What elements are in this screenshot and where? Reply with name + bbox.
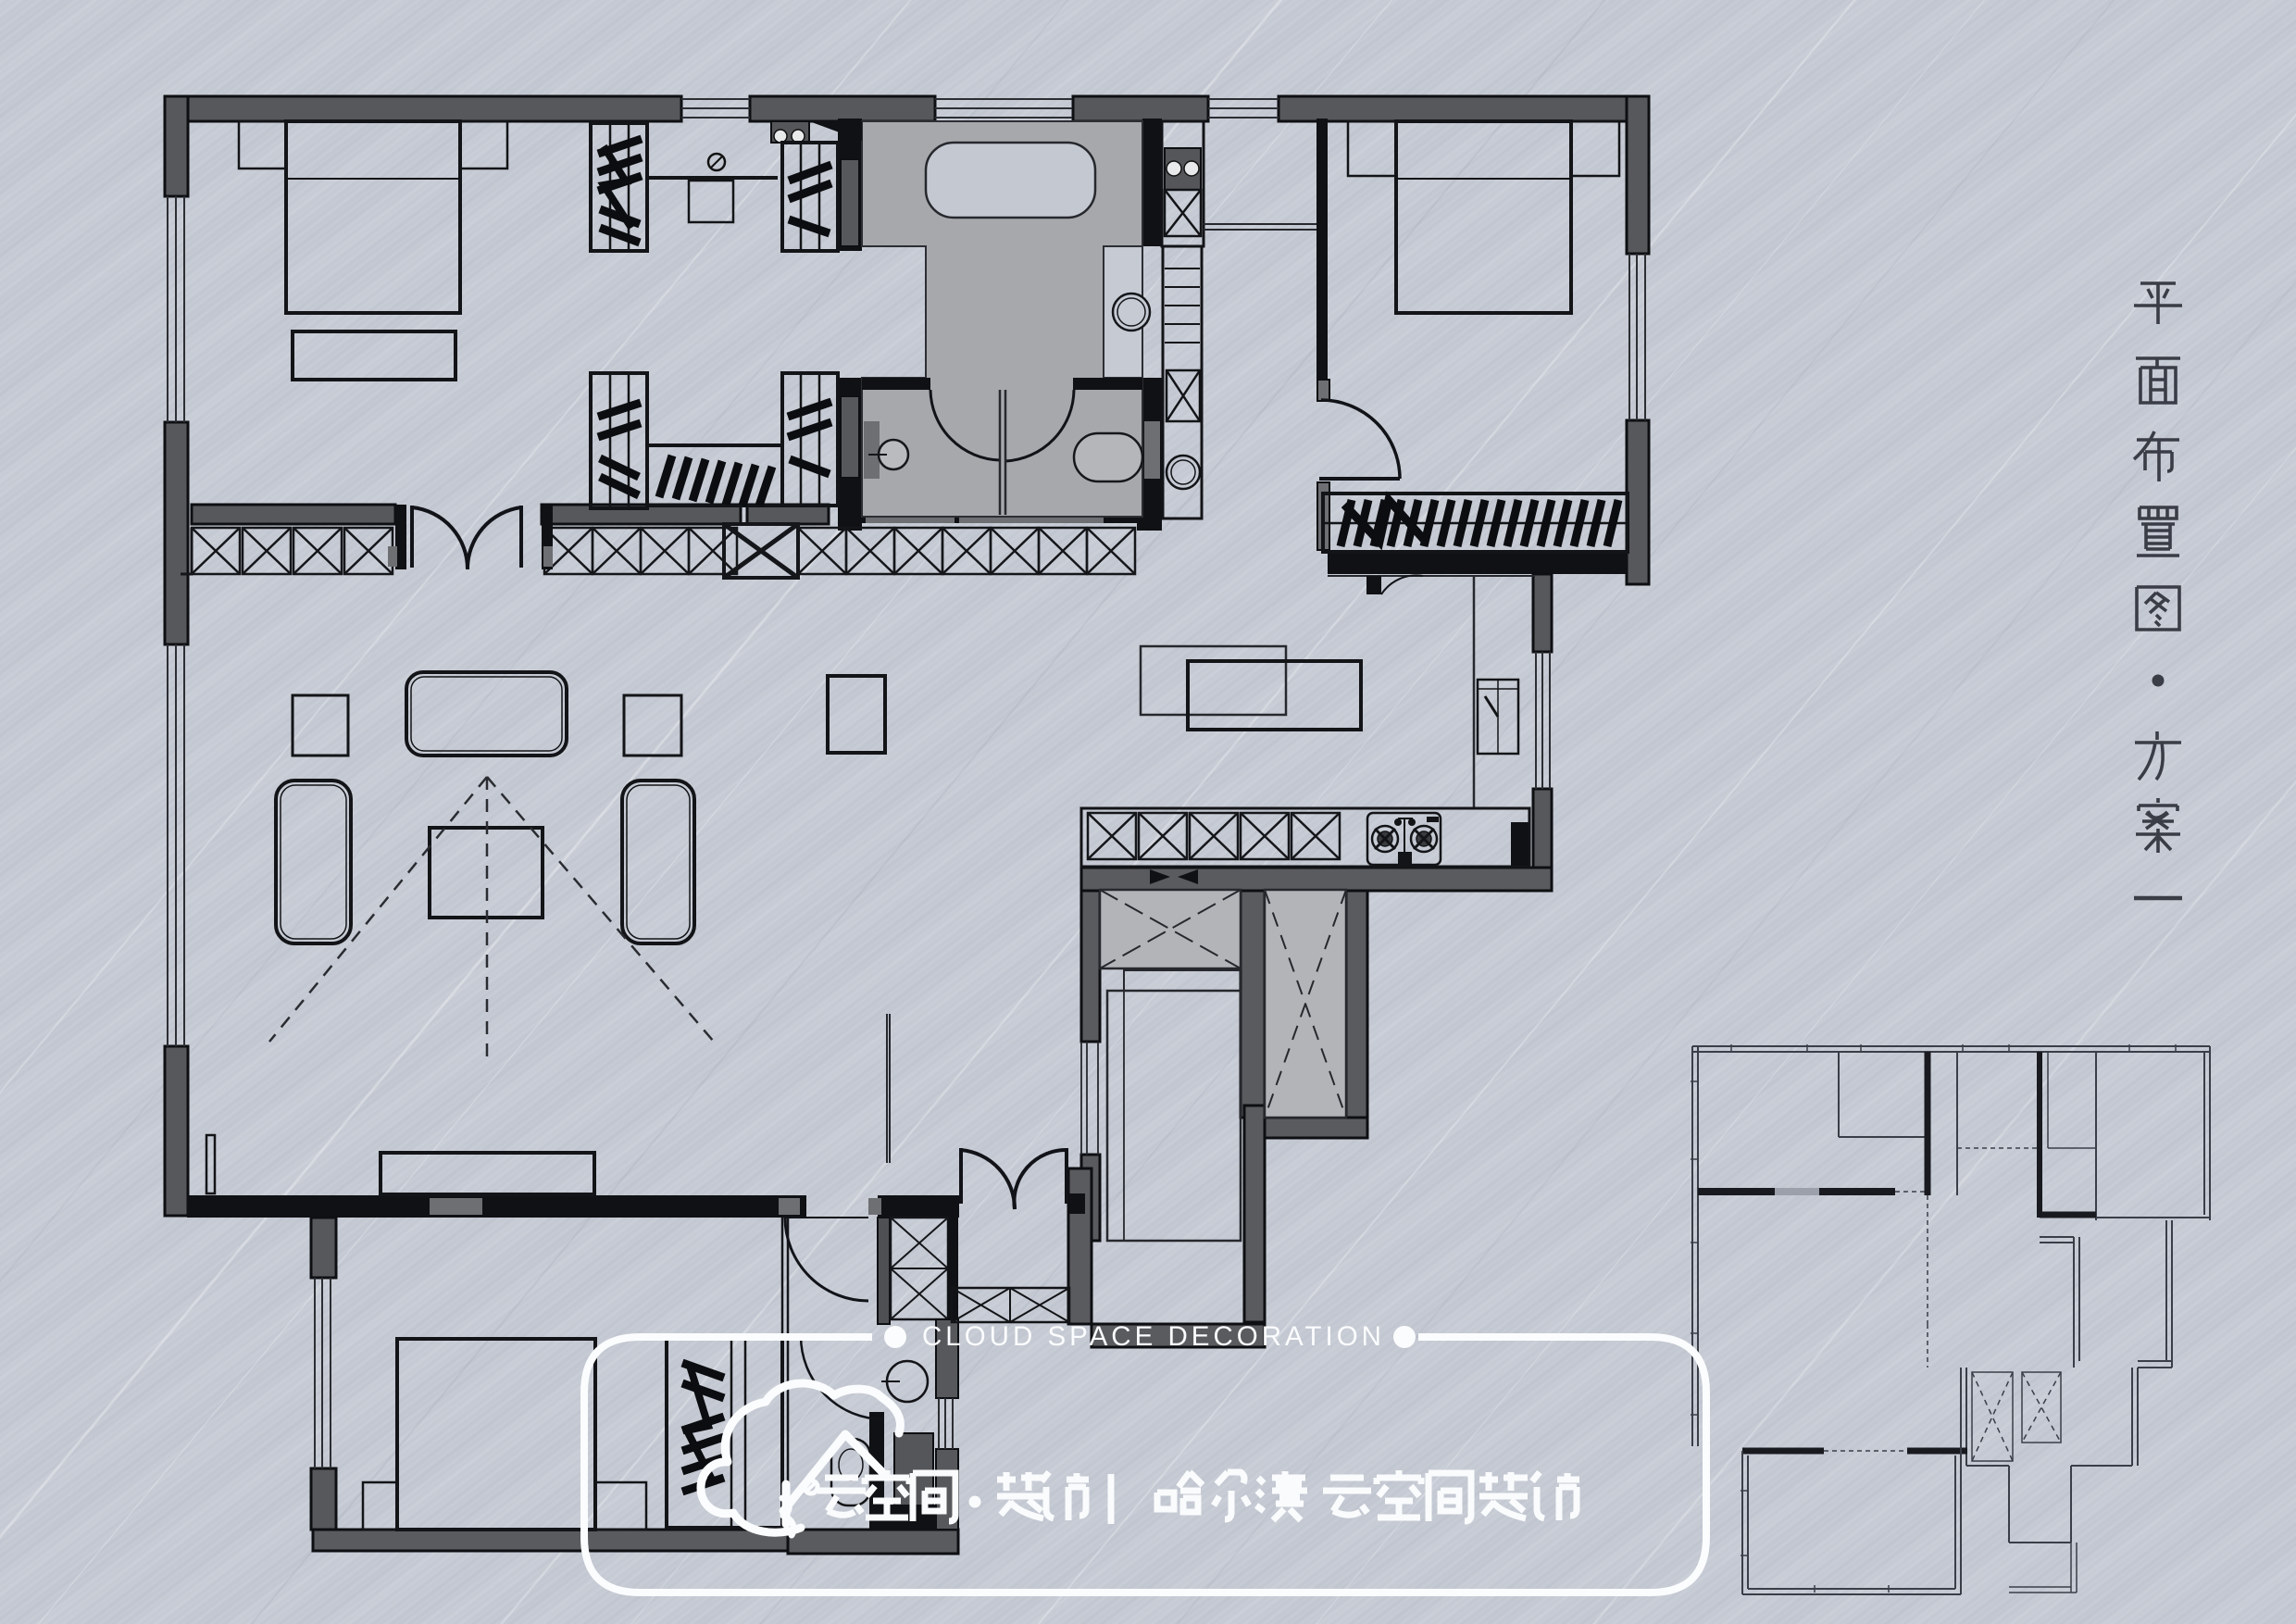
- svg-text:CLOUD SPACE DECORATION: CLOUD SPACE DECORATION: [922, 1321, 1385, 1352]
